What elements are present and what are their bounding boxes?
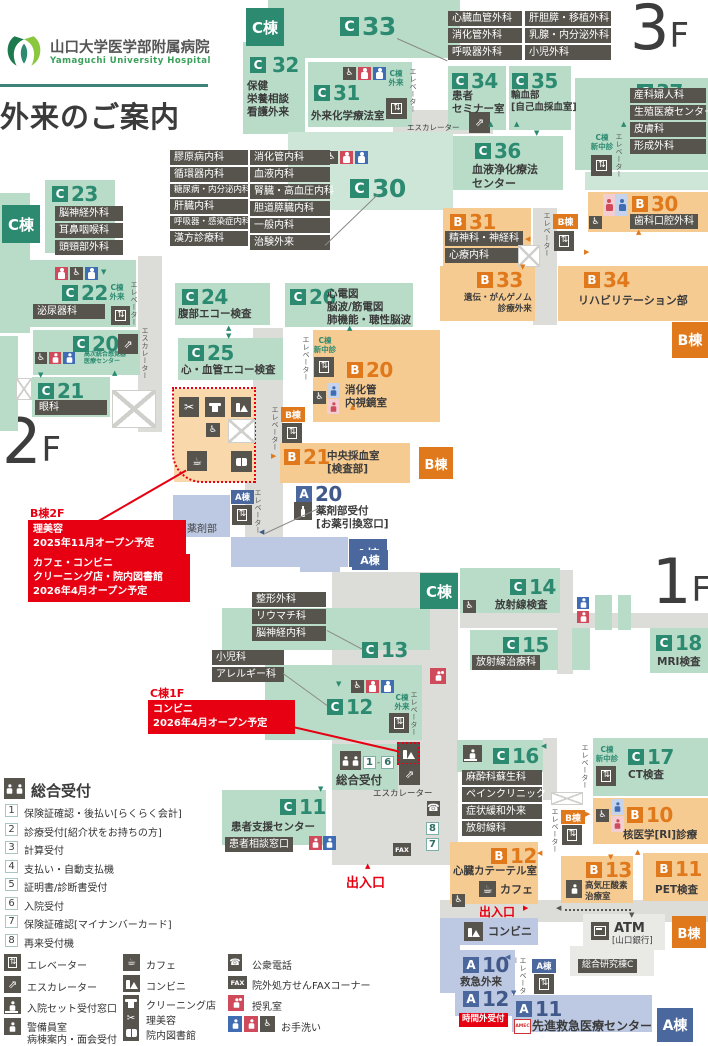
future-convenience-store-icon bbox=[397, 742, 420, 765]
note-line: コンビニ bbox=[153, 703, 290, 717]
atm-label: ATM bbox=[614, 921, 645, 937]
elevator-icon: ⇅ bbox=[386, 98, 407, 119]
female-restroom-icon bbox=[49, 352, 61, 364]
page-title: 外来のご案内 bbox=[0, 94, 180, 136]
room-name-line: 心電図 bbox=[327, 288, 411, 301]
direction-arrow: ▶ bbox=[584, 249, 589, 256]
reception-icon bbox=[340, 751, 361, 770]
b-wing-elevator-badge: B棟 bbox=[553, 214, 578, 229]
public-phone-icon: ☎ bbox=[427, 801, 440, 816]
closed-passage bbox=[112, 390, 156, 428]
c-shinchushin-elevator-label: C棟新中診 bbox=[593, 746, 621, 763]
b-wing-badge: B棟 bbox=[672, 916, 706, 948]
elevator-label: エレベーター bbox=[410, 691, 417, 739]
room-label-b31: B31 bbox=[450, 212, 496, 232]
room-label-c12: C12 bbox=[327, 697, 373, 717]
room-name-line: [検査部] bbox=[327, 463, 380, 476]
legend-number: 2 bbox=[5, 823, 18, 836]
male-restroom-icon bbox=[323, 836, 336, 850]
wheelchair-icon: ♿ bbox=[589, 216, 602, 229]
legend-item: カフェ bbox=[146, 957, 176, 972]
floor-label-3f: 3F bbox=[630, 0, 689, 56]
convenience-store-icon bbox=[231, 397, 251, 417]
legend-number: 4 bbox=[5, 860, 18, 873]
direction-arrow: ▼ bbox=[101, 269, 106, 276]
elevator-icon: ⇅ bbox=[534, 974, 554, 994]
dept-label: リウマチ科 bbox=[252, 609, 326, 624]
dept-label: 耳鼻咽喉科 bbox=[55, 223, 123, 238]
nursing-room-icon bbox=[430, 668, 446, 684]
legend-item: 入院セット受付窓口 bbox=[27, 1000, 117, 1015]
dept-label: アレルギー科 bbox=[212, 667, 284, 682]
room-name-line: 診療外来 bbox=[464, 304, 532, 315]
a20-name: 薬剤部受付[お薬引換窓口] bbox=[316, 505, 389, 531]
c-shinchushin-elevator-label: C棟新中診 bbox=[588, 134, 616, 151]
counter-number: 7 bbox=[426, 838, 439, 851]
room-label-b13: B13 bbox=[586, 860, 632, 880]
male-restroom-icon bbox=[577, 597, 589, 609]
hospital-name-en: Yamaguchi University Hospital bbox=[50, 56, 211, 66]
dept-label: 形成外科 bbox=[630, 139, 706, 154]
dept-label: 小児科 bbox=[212, 650, 284, 665]
legend-number: 1 bbox=[5, 804, 18, 817]
elevator-label: エレベーター bbox=[130, 281, 137, 331]
cleaning-shop-icon bbox=[205, 397, 225, 417]
male-restroom-icon bbox=[63, 352, 75, 364]
room-name-line: 看護外来 bbox=[247, 106, 289, 119]
c35-name: 輸血部[自己血採血室] bbox=[511, 90, 577, 114]
room-name-line: 高気圧酸素 bbox=[585, 881, 628, 892]
c16-dept-list: 麻酔科蘇生科ペインクリニック症状緩和外来放射線科 bbox=[462, 770, 542, 836]
dept-label: 心療内科 bbox=[445, 248, 523, 263]
room-label-b20: B20 bbox=[347, 360, 393, 380]
direction-arrow: ▲ bbox=[347, 325, 352, 332]
escalator-icon: ⇗ bbox=[4, 976, 21, 993]
dept-label: 精神科・神経科 bbox=[445, 231, 523, 246]
note-line: クリーニング店・院内図書館 bbox=[33, 571, 185, 585]
room-label-c16: C16 bbox=[493, 746, 539, 766]
c18-name: MRI検査 bbox=[657, 656, 700, 669]
elevator-label: エレベーター bbox=[615, 133, 622, 181]
dept-label: 一般内科 bbox=[250, 218, 330, 233]
barber-icon: ✂ bbox=[123, 1010, 139, 1026]
escalator-label: エスカレーター bbox=[407, 123, 460, 132]
b13-name: 高気圧酸素治療室 bbox=[585, 881, 628, 902]
room-name-line: 保健 bbox=[247, 80, 289, 93]
elevator-icon: ⇅ bbox=[389, 713, 409, 733]
c15-name: 放射線治療科 bbox=[472, 655, 540, 670]
room-name-line: 医療センター bbox=[84, 359, 138, 366]
label-line: 外来 bbox=[384, 79, 408, 88]
dept-label: 腎臓・高血圧内科 bbox=[250, 184, 330, 199]
legend-item: 理美容 bbox=[146, 1012, 176, 1027]
c30-dept-list-col2: 消化管内科血液内科腎臓・高血圧内科胆道膵臓内科一般内科治験外来 bbox=[250, 150, 330, 250]
c32-name: 保健栄養相談看護外来 bbox=[247, 80, 289, 119]
entrance-label: 出入口 bbox=[346, 872, 385, 891]
dept-label: 消化管内科 bbox=[250, 150, 330, 165]
entrance-label: 出入口 bbox=[479, 903, 515, 920]
dept-label: 小児外科 bbox=[525, 45, 611, 60]
note-b2f-box2: カフェ・コンビニクリーニング店・院内図書館2026年4月オープン予定 bbox=[28, 554, 190, 602]
cafe-icon: ☕ bbox=[187, 451, 207, 471]
amec-logo: AMEC bbox=[514, 1019, 531, 1034]
b34-name: リハビリテーション部 bbox=[578, 294, 688, 308]
male-restroom-icon bbox=[355, 151, 368, 164]
room-label-a11: A11 bbox=[516, 999, 562, 1019]
b-wing-elevator-badge: B棟 bbox=[561, 810, 585, 824]
label-line: 新中診 bbox=[311, 346, 339, 355]
elevator-icon: ⇅ bbox=[314, 357, 334, 377]
hospital-name: 山口大学医学部附属病院 bbox=[50, 36, 210, 57]
c14-name: 放射線検査 bbox=[495, 599, 548, 612]
label-line: 新中診 bbox=[593, 755, 621, 764]
room-label-b33: B33 bbox=[477, 270, 523, 290]
note-b2f-box1: 理美容2025年11月オープン予定 bbox=[28, 520, 186, 554]
room-label-c18: C18 bbox=[656, 633, 702, 653]
wheelchair-icon: ♿ bbox=[35, 352, 47, 364]
elevator-label: エレベーター bbox=[543, 212, 550, 262]
room-label-c17: C17 bbox=[628, 747, 674, 767]
room-label-c32: C32 bbox=[250, 55, 299, 75]
dept-label: 循環器内科 bbox=[170, 167, 248, 182]
b33-name: 遺伝・がんゲノム診療外来 bbox=[464, 293, 532, 314]
note-c1f-box: コンビニ2026年4月オープン予定 bbox=[148, 700, 295, 734]
dept-label: 治験外来 bbox=[250, 235, 330, 250]
pharmacy-label: 薬剤部 bbox=[187, 524, 217, 537]
nursing-room-icon bbox=[228, 995, 244, 1011]
dept-label: 呼吸器・感染症内科 bbox=[170, 216, 248, 229]
room-name-line: 血液浄化療法 bbox=[472, 163, 538, 177]
legend-item: 計算受付 bbox=[24, 842, 64, 857]
dept-label: 肝胆膵・移植外科 bbox=[525, 11, 611, 26]
legend-item: お手洗い bbox=[281, 1019, 321, 1034]
escalator-icon: ⇗ bbox=[399, 764, 420, 785]
room-label-c11: C11 bbox=[280, 797, 326, 817]
c33-dept-list-col1: 心臓血管外科消化管外科呼吸器外科 bbox=[448, 11, 522, 60]
lab-building-label: 総合研究棟C bbox=[578, 959, 637, 973]
elevator-icon: ⇅ bbox=[554, 231, 574, 251]
dept-label: 肝臓内科 bbox=[170, 199, 248, 214]
a-wing-area bbox=[300, 550, 340, 572]
room-label-c23: C23 bbox=[52, 184, 98, 204]
room-label-c24: C24 bbox=[182, 287, 228, 307]
elevator-icon: ⇅ bbox=[4, 954, 21, 971]
direction-arrow: ▼ bbox=[318, 786, 323, 793]
c34-name: 患者セミナー室 bbox=[452, 90, 505, 116]
convenience-label: コンビニ bbox=[488, 925, 532, 939]
female-restroom-icon bbox=[577, 611, 589, 623]
b10-name: 核医学[RI]診療 bbox=[623, 829, 697, 842]
cafe-label: カフェ bbox=[500, 883, 533, 897]
legend-item: 支払い・自動支払機 bbox=[24, 861, 114, 876]
female-restroom-icon bbox=[244, 1016, 258, 1032]
room-name-line: 薬剤部受付 bbox=[316, 505, 389, 518]
note-line: 理美容 bbox=[33, 523, 181, 537]
note-line: 2026年4月オープン予定 bbox=[33, 585, 185, 599]
elevator-label: エレベーター bbox=[409, 68, 416, 126]
elevator-icon: ⇅ bbox=[562, 825, 582, 845]
wheelchair-icon: ♿ bbox=[260, 1016, 275, 1032]
atm-bank-label: [山口銀行] bbox=[612, 936, 653, 947]
direction-arrow: ▲ bbox=[621, 121, 626, 128]
a-wing-elevator-badge: A棟 bbox=[231, 490, 254, 504]
legend-item: 診療受付[紹介状をお持ちの方] bbox=[24, 824, 162, 839]
room-name-line: 栄養相談 bbox=[247, 93, 289, 106]
hospital-logo bbox=[4, 31, 44, 71]
male-restroom-icon bbox=[85, 267, 98, 280]
room-name-line: 治療室 bbox=[585, 892, 628, 903]
inpatient-set-counter-icon bbox=[463, 745, 482, 762]
c-shinchushin-elevator-label: C棟新中診 bbox=[311, 337, 339, 354]
wheelchair-icon: ♿ bbox=[70, 267, 83, 280]
direction-arrow: ▼ bbox=[534, 130, 539, 137]
dept-label: 放射線科 bbox=[462, 821, 542, 836]
legend-reception-title: 総合受付 bbox=[31, 780, 91, 801]
c20-name: 高次統合感覚器医療センター bbox=[84, 352, 138, 366]
b-wing-elevator-badge: B棟 bbox=[281, 407, 305, 422]
legend-item: 再来受付機 bbox=[24, 935, 74, 950]
escalator-icon: ⇗ bbox=[118, 334, 138, 354]
dept-label: 乳腺・内分泌外科 bbox=[525, 28, 611, 43]
wheelchair-icon: ♿ bbox=[463, 600, 476, 613]
room-name-line: [自己血採血室] bbox=[511, 102, 577, 114]
legend-item: クリーニング店 bbox=[146, 997, 216, 1012]
direction-arrow: ▶ bbox=[585, 811, 590, 818]
note-line: 2025年11月オープン予定 bbox=[33, 537, 181, 551]
male-restroom-icon bbox=[327, 383, 339, 398]
dept-label: 膠原病内科 bbox=[170, 150, 248, 165]
note-line: カフェ・コンビニ bbox=[33, 557, 185, 571]
room-label-c14: C14 bbox=[510, 577, 556, 597]
c-wing-area bbox=[572, 628, 590, 670]
atm-icon bbox=[591, 922, 609, 940]
counter-number: 8 bbox=[426, 822, 439, 835]
dept-label: 糖尿病・内分泌内科 bbox=[170, 184, 248, 197]
wheelchair-icon: ♿ bbox=[351, 680, 364, 693]
header-divider bbox=[0, 84, 208, 87]
direction-arrow: ▼ bbox=[629, 912, 634, 919]
entrance-arrow: ▲ bbox=[365, 863, 370, 870]
room-label-c22: C22 bbox=[62, 283, 108, 303]
legend-number: 7 bbox=[5, 915, 18, 928]
room-label-c13: C13 bbox=[362, 640, 408, 660]
room-label-c35: C35 bbox=[512, 71, 558, 91]
c-wing-area bbox=[618, 595, 631, 630]
reception-counter-range: 1 - 6 bbox=[363, 756, 394, 769]
wheelchair-icon: ♿ bbox=[313, 391, 326, 404]
male-restroom-icon bbox=[381, 680, 394, 693]
direction-arrow: ◀ bbox=[556, 905, 561, 912]
room-label-b30: B30 bbox=[632, 194, 678, 214]
range-dash: - bbox=[377, 758, 380, 768]
c11-name: 患者支援センター bbox=[231, 821, 315, 834]
elevator-label: エレベーター bbox=[271, 406, 278, 456]
dept-label: 症状緩和外来 bbox=[462, 804, 542, 819]
c30-dept-list-col1: 膠原病内科循環器内科糖尿病・内分泌内科肝臓内科呼吸器・感染症内科漢方診療科 bbox=[170, 150, 248, 246]
direction-arrow: ◀ bbox=[259, 529, 264, 536]
b11-name: PET検査 bbox=[655, 884, 698, 897]
b-wing-badge: B棟 bbox=[672, 322, 708, 358]
a-wing-badge: A棟 bbox=[352, 550, 388, 570]
legend-item: 授乳室 bbox=[252, 998, 282, 1013]
legend-item: 院内図書館 bbox=[146, 1027, 196, 1042]
room-label-b11: B11 bbox=[656, 859, 702, 879]
c-outpatient-elevator-label: C棟外来 bbox=[384, 70, 408, 87]
room-label-b10: B10 bbox=[627, 805, 673, 825]
room-label-a10: A10 bbox=[463, 955, 509, 975]
label-line: 新中診 bbox=[588, 143, 616, 152]
direction-arrow: ▶ bbox=[271, 453, 276, 460]
dept-label: 麻酔科蘇生科 bbox=[462, 770, 542, 785]
dept-label: 生殖医療センター bbox=[630, 105, 706, 120]
direction-arrow: ▼ bbox=[336, 681, 341, 688]
legend-number: 8 bbox=[5, 934, 18, 947]
closed-passage bbox=[228, 419, 255, 443]
elevator-icon: ⇅ bbox=[596, 766, 616, 786]
room-name-line: 中央採血室 bbox=[327, 450, 380, 463]
c23-dept-list: 脳神経外科耳鼻咽喉科頭頸部外科 bbox=[55, 206, 123, 255]
direction-arrow: ◀ bbox=[505, 954, 510, 961]
legend-item: 保険証確認[マイナンバーカード] bbox=[24, 916, 172, 931]
legend-number: 3 bbox=[5, 841, 18, 854]
direction-arrow: ◀ bbox=[541, 743, 546, 750]
b31-dept-list: 精神科・神経科心療内科 bbox=[445, 231, 523, 263]
hospital-floor-map: { "codes":{"c":"C","b":"B","a":"A"}, "wi… bbox=[0, 0, 708, 1042]
direction-arrow: ▲ bbox=[636, 229, 641, 236]
b21-name: 中央採血室[検査部] bbox=[327, 450, 380, 476]
c24-name: 腹部エコー検査 bbox=[178, 308, 252, 321]
male-restroom-icon bbox=[228, 1016, 242, 1032]
legend-item: コンビニ bbox=[146, 978, 186, 993]
counter-number: 6 bbox=[381, 756, 394, 769]
reception-icon bbox=[4, 778, 25, 799]
female-restroom-icon bbox=[358, 67, 371, 80]
room-name-line: セミナー室 bbox=[452, 103, 505, 116]
female-restroom-icon bbox=[603, 194, 615, 216]
c37-dept-list: 産科婦人科生殖医療センター皮膚科形成外科 bbox=[630, 88, 706, 154]
convenience-store-icon bbox=[123, 975, 140, 992]
c12-dept-list: 小児科アレルギー科 bbox=[212, 650, 284, 682]
room-label-a20: A20 bbox=[296, 484, 342, 504]
direction-arrow: ▼ bbox=[520, 264, 525, 271]
direction-arrow: ▼ bbox=[38, 372, 43, 379]
a-wing-badge: A棟 bbox=[657, 1008, 693, 1042]
wheelchair-icon: ♿ bbox=[596, 809, 609, 822]
dept-label: 脳神経内科 bbox=[252, 626, 326, 641]
barber-icon: ✂ bbox=[179, 397, 199, 417]
dept-label: 脳神経外科 bbox=[55, 206, 123, 221]
c26-name: 心電図脳波/筋電図肺機能・聴性脳波 bbox=[327, 288, 411, 327]
room-name-line: 脳波/筋電図 bbox=[327, 301, 411, 314]
room-label-c30: C30 bbox=[350, 176, 406, 201]
direction-arrow: ▲ bbox=[514, 121, 519, 128]
c13-dept-list: 整形外科リウマチ科脳神経内科 bbox=[252, 592, 326, 641]
elevator-label: エレベーター bbox=[302, 336, 309, 384]
dept-label: 呼吸器外科 bbox=[448, 45, 522, 60]
elevator-icon: ⇅ bbox=[282, 423, 302, 443]
dept-label: 頭頸部外科 bbox=[55, 240, 123, 255]
room-label-b12: B12 bbox=[491, 846, 537, 866]
room-name-line: 遺伝・がんゲノム bbox=[464, 293, 532, 304]
elevator-icon: ⇅ bbox=[232, 505, 252, 525]
dept-label: 消化管外科 bbox=[448, 28, 522, 43]
c21-name: 眼科 bbox=[35, 400, 107, 415]
elevator-icon: ⇅ bbox=[111, 306, 130, 325]
female-restroom-icon bbox=[366, 680, 379, 693]
dept-label: 皮膚科 bbox=[630, 122, 706, 137]
floor-label-1f: 1F bbox=[652, 554, 708, 610]
room-label-b34: B34 bbox=[584, 270, 630, 290]
c-wing-badge: C棟 bbox=[2, 205, 40, 243]
dept-label: 心臓血管外科 bbox=[448, 11, 522, 26]
walking-route bbox=[565, 909, 631, 911]
c-wing-badge: C棟 bbox=[246, 8, 284, 46]
fax-icon: FAX bbox=[228, 976, 247, 989]
closed-passage bbox=[16, 378, 32, 400]
legend-item: エスカレーター bbox=[27, 979, 97, 994]
escalator-label: エスカレーター bbox=[141, 327, 148, 382]
dept-label: 漢方診療科 bbox=[170, 231, 248, 246]
room-label-c15: C15 bbox=[503, 635, 549, 655]
a12-name: 時間外受付 bbox=[459, 1013, 508, 1027]
elevator-icon: ⇅ bbox=[591, 155, 612, 176]
cleaning-shop-icon bbox=[123, 995, 139, 1011]
escalator-label: エスカレーター bbox=[373, 789, 433, 800]
c-outpatient-elevator-label: C棟外来 bbox=[105, 284, 129, 301]
legend-item: 病棟案内・面会受付 bbox=[27, 1031, 117, 1046]
wheelchair-icon: ♿ bbox=[452, 894, 465, 907]
direction-arrow: ◀ bbox=[525, 236, 530, 243]
legend-item: 院外処方せんFAXコーナー bbox=[252, 977, 371, 992]
b30-name: 歯科口腔外科 bbox=[630, 214, 698, 229]
room-name-line: [お薬引換窓口] bbox=[316, 518, 389, 531]
direction-arrow: ▼ bbox=[226, 333, 231, 340]
library-icon bbox=[123, 1025, 139, 1041]
dept-label: 胆道膵臓内科 bbox=[250, 201, 330, 216]
entrance-arrow: ▶ bbox=[523, 905, 528, 912]
fax-icon: FAX bbox=[393, 843, 411, 856]
c25-name: 心・血管エコー検査 bbox=[181, 364, 276, 377]
room-label-c33: C33 bbox=[340, 14, 396, 39]
wheelchair-icon: ♿ bbox=[206, 423, 220, 437]
note-b2f-head: B棟2F bbox=[30, 505, 65, 521]
a-wing-elevator-badge: A棟 bbox=[532, 959, 556, 973]
legend-item: 公衆電話 bbox=[252, 957, 292, 972]
dept-label: 血液内科 bbox=[250, 167, 330, 182]
room-name-line: 輸血部 bbox=[511, 90, 577, 102]
c-wing-badge: C棟 bbox=[420, 573, 458, 609]
direction-arrow: ▲ bbox=[635, 849, 640, 856]
room-label-c31: C31 bbox=[314, 83, 360, 103]
dept-label: 整形外科 bbox=[252, 592, 326, 607]
c31-name: 外来化学療法室 bbox=[311, 110, 385, 123]
legend-item: エレベーター bbox=[27, 957, 87, 972]
legend-item: 保険証確認・後払い[らくらく会計] bbox=[24, 805, 182, 820]
staff-icon bbox=[566, 880, 582, 898]
female-restroom-icon bbox=[340, 151, 353, 164]
room-label-c21: C21 bbox=[38, 381, 84, 401]
direction-arrow: ▲ bbox=[488, 121, 493, 128]
c22-name: 泌尿器科 bbox=[33, 304, 105, 319]
b-wing-badge: B棟 bbox=[419, 447, 453, 479]
label-line: 外来 bbox=[105, 293, 129, 302]
c36-name: 血液浄化療法センター bbox=[472, 163, 538, 191]
elevator-label: エレベーター bbox=[581, 744, 588, 792]
male-restroom-icon bbox=[611, 799, 624, 815]
direction-arrow: ▼ bbox=[511, 990, 516, 997]
legend-number: 6 bbox=[5, 897, 18, 910]
security-guard-icon bbox=[4, 1018, 21, 1035]
